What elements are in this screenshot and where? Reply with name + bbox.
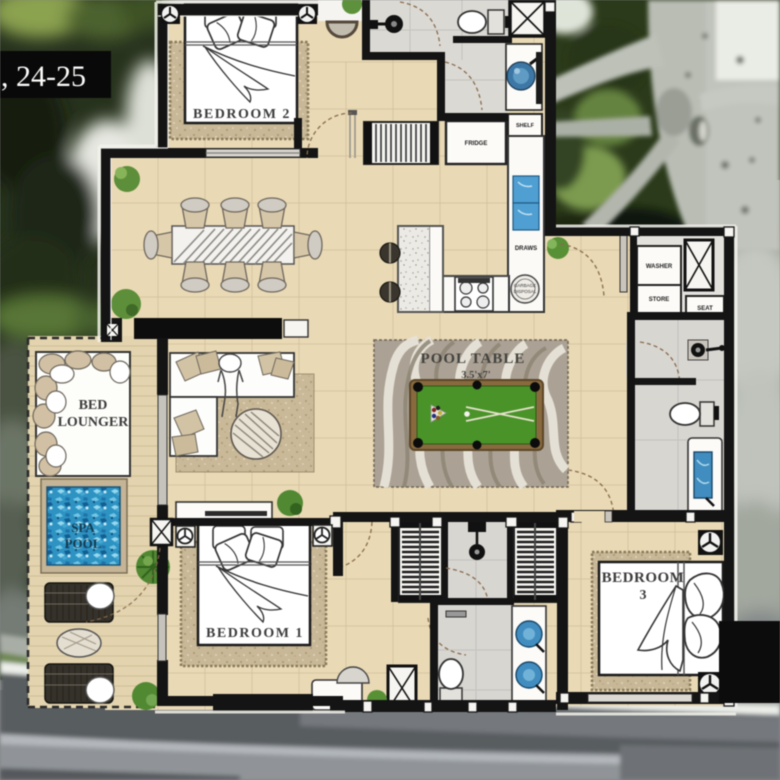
svg-text:BEDROOM 2: BEDROOM 2 xyxy=(193,107,291,122)
svg-text:POOL: POOL xyxy=(65,536,102,551)
svg-text:POOL TABLE: POOL TABLE xyxy=(421,351,526,367)
svg-text:BED: BED xyxy=(79,398,108,413)
svg-text:WASHER: WASHER xyxy=(646,264,673,270)
svg-text:LOUNGER: LOUNGER xyxy=(58,415,130,430)
svg-text:SHELF: SHELF xyxy=(516,123,535,129)
svg-text:STORE: STORE xyxy=(649,297,670,303)
svg-text:FRIDGE: FRIDGE xyxy=(465,141,488,147)
svg-text:SEAT: SEAT xyxy=(697,306,713,312)
svg-text:BEDROOM 1: BEDROOM 1 xyxy=(206,626,304,641)
svg-text:SPA: SPA xyxy=(71,520,95,535)
svg-text:DRAWS: DRAWS xyxy=(515,246,537,252)
svg-text:BEDROOM: BEDROOM xyxy=(602,570,685,586)
svg-text:3.5'x7': 3.5'x7' xyxy=(461,370,491,381)
svg-text:GARBAGE: GARBAGE xyxy=(514,283,536,288)
svg-text:DISPOSAL: DISPOSAL xyxy=(514,289,537,294)
svg-text:, 24-25: , 24-25 xyxy=(1,60,86,93)
svg-text:3: 3 xyxy=(640,588,647,603)
